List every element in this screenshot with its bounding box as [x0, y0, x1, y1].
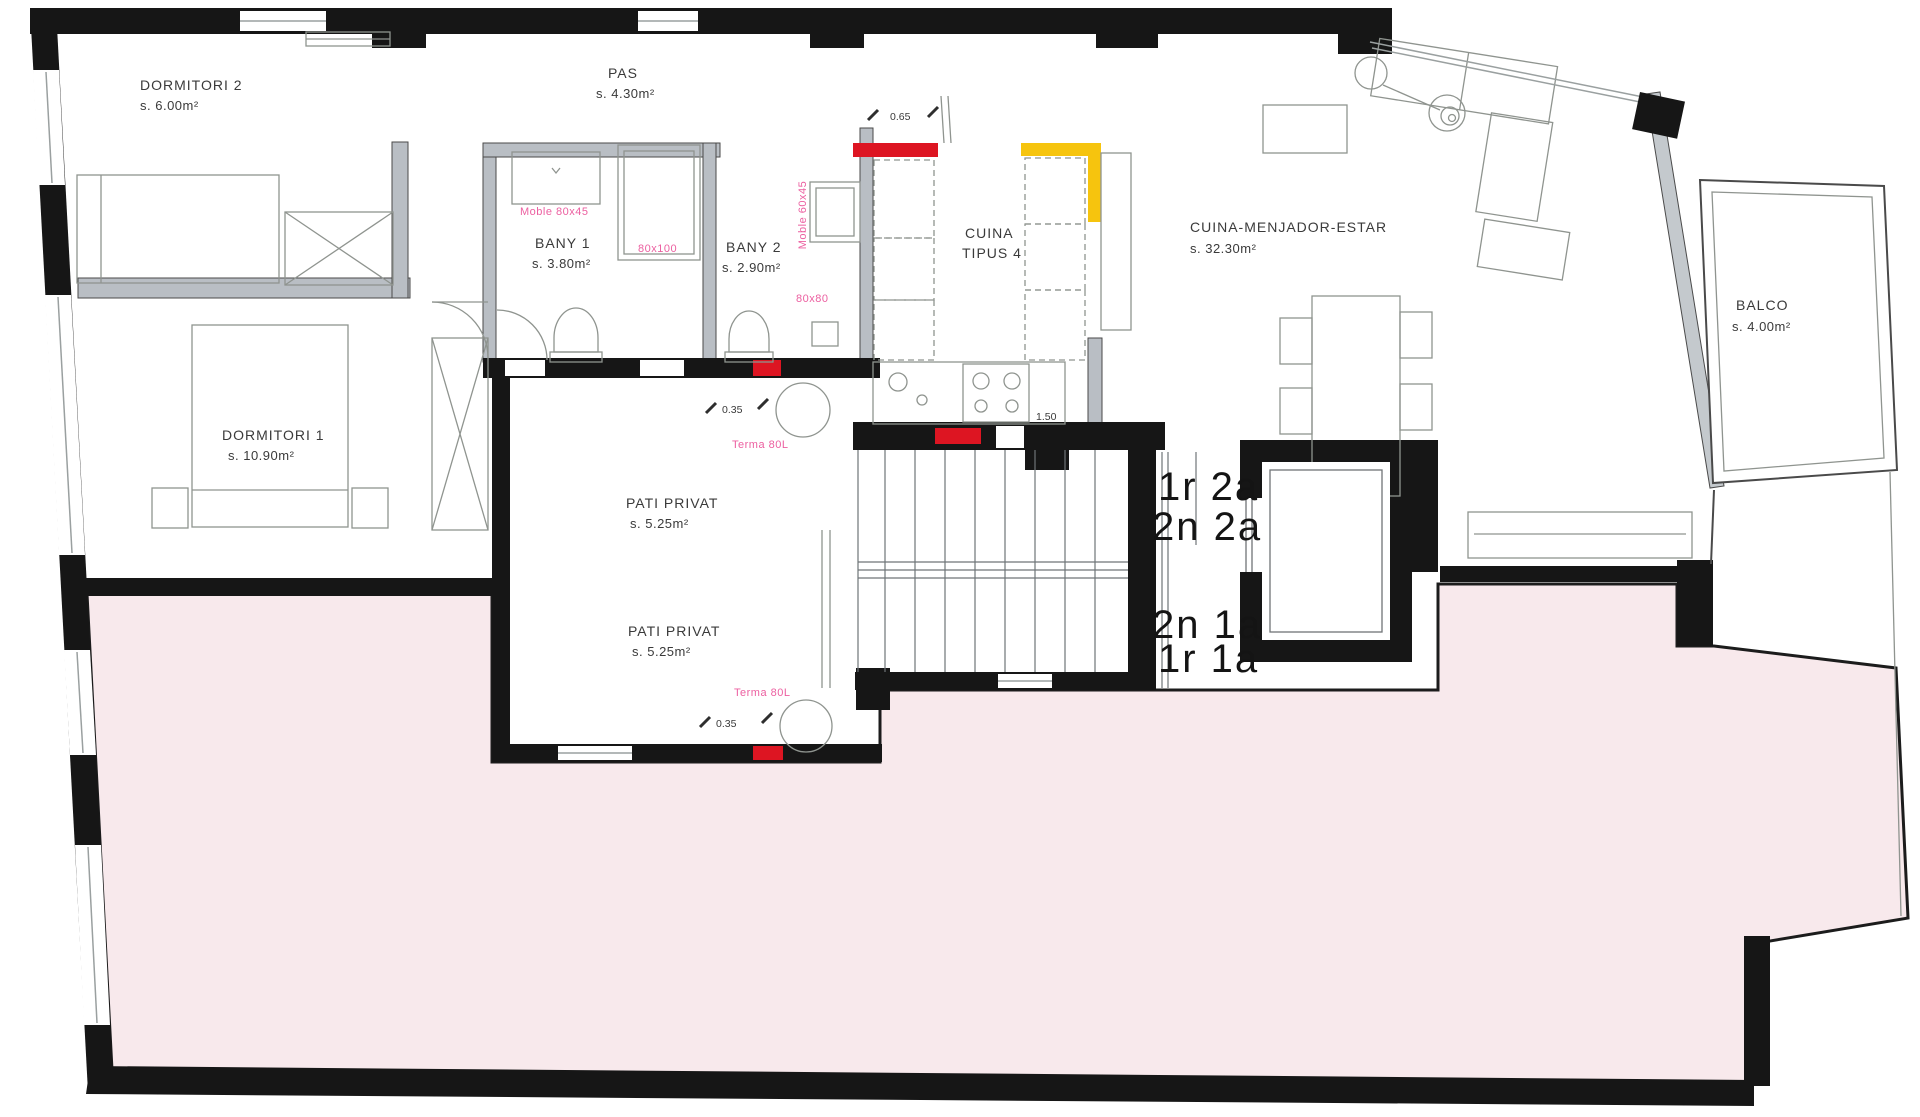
wardrobe-dormitori1	[432, 338, 488, 530]
balcony-outline	[1700, 180, 1897, 483]
stair-right-wall	[1128, 422, 1156, 690]
pati-stair-corner	[856, 668, 890, 710]
dim-pati-2: 0.35	[716, 718, 737, 730]
bed-dormitori2	[77, 175, 279, 283]
label-pati2-name: PATI PRIVAT	[628, 623, 720, 639]
dim-pati-1: 0.35	[722, 404, 743, 416]
elevator-cab	[1262, 462, 1390, 640]
red-wall-segment	[753, 746, 783, 760]
label-bany1-name: BANY 1	[535, 235, 591, 251]
sink-bany1	[512, 152, 600, 204]
door-arc-dormitori1	[432, 302, 488, 358]
top-wall-pillar	[1096, 8, 1158, 48]
dim-kitchen-run: 1.50	[1036, 411, 1057, 423]
label-bany2-area: s. 2.90m²	[722, 260, 781, 275]
water-heater-1	[776, 383, 830, 437]
label-terma-2: Terma 80L	[734, 687, 790, 699]
bottom-right-step-wall	[1744, 936, 1770, 1086]
floor-plan-drawing: DORMITORI 2 s. 6.00m² PAS s. 4.30m² BANY…	[0, 0, 1920, 1117]
top-wall-pillar	[372, 8, 426, 48]
armchair-spiral	[1429, 95, 1465, 131]
red-wall-segment	[935, 428, 981, 444]
shower-tray-bany2	[812, 322, 838, 346]
label-balco-area: s. 4.00m²	[1732, 319, 1791, 334]
label-dormitori1-area: s. 10.90m²	[228, 448, 295, 463]
bench-wall	[1440, 566, 1712, 582]
label-pati1-name: PATI PRIVAT	[626, 495, 718, 511]
pati-left-wall	[492, 365, 510, 762]
bany1-left-wall	[483, 157, 496, 362]
label-moble-60x45: Moble 60x45	[797, 181, 809, 250]
stair-landing-lines	[858, 562, 1128, 578]
kitchen-door-lines	[941, 96, 951, 143]
toilet-bany2	[725, 311, 773, 362]
terrace-area	[87, 584, 1908, 1082]
dorm2-bottom-wall	[78, 278, 410, 298]
sofa-group	[1347, 38, 1595, 280]
label-dormitori2-name: DORMITORI 2	[140, 77, 243, 93]
label-balco-name: BALCO	[1736, 297, 1788, 313]
wardrobe-dormitori2	[285, 212, 393, 285]
unit-label-1r1a: 1r 1a	[1158, 637, 1259, 681]
label-cuina-name: CUINA	[965, 225, 1014, 241]
label-pati2-area: s. 5.25m²	[632, 644, 691, 659]
stair-top-pillar	[1025, 422, 1069, 470]
dimension-ticks	[700, 107, 938, 727]
sink-bany2	[810, 182, 860, 242]
facade-corner-chunk	[1677, 560, 1713, 646]
interior-partitions	[78, 128, 1102, 426]
label-dormitori2-area: s. 6.00m²	[140, 98, 199, 113]
dim-door-top: 0.65	[890, 111, 911, 123]
label-pas-area: s. 4.30m²	[596, 86, 655, 101]
label-living-name: CUINA-MENJADOR-ESTAR	[1190, 219, 1387, 235]
kitchen-counter-strip	[1101, 153, 1131, 330]
pati-divider	[822, 530, 830, 688]
label-shower-80x100: 80x100	[638, 243, 677, 255]
staircase	[858, 450, 1128, 672]
elevator	[1240, 462, 1390, 640]
floor-plan: DORMITORI 2 s. 6.00m² PAS s. 4.30m² BANY…	[0, 0, 1920, 1117]
facade-lower-line	[1711, 490, 1714, 564]
unit-label-1r2a: 1r 2a	[1158, 465, 1259, 509]
kitchen-wall-stub	[1088, 338, 1102, 426]
label-terma-1: Terma 80L	[732, 439, 788, 451]
door-arc-bany1	[497, 310, 547, 360]
facade-black-chunk	[1632, 92, 1685, 139]
dorm2-right-wall	[392, 142, 408, 298]
label-living-area: s. 32.30m²	[1190, 241, 1257, 256]
bany-divider-wall	[703, 143, 716, 362]
label-dormitori1-name: DORMITORI 1	[222, 427, 325, 443]
bany2-kitchen-wall	[860, 128, 873, 368]
label-cuina-type: TIPUS 4	[962, 245, 1022, 261]
top-wall-pillar	[810, 8, 864, 48]
red-wall-segment	[853, 143, 938, 157]
floor-lamp	[1355, 57, 1440, 110]
stair-bottom-wall	[855, 672, 1128, 690]
coffee-table	[1263, 105, 1347, 153]
yellow-counter-accent	[1021, 143, 1101, 222]
balcony	[1700, 180, 1897, 483]
label-pas-name: PAS	[608, 65, 638, 81]
label-bany1-area: s. 3.80m²	[532, 256, 591, 271]
pati-bottom-wall	[492, 744, 882, 762]
kitchen-hob	[963, 364, 1029, 422]
label-bany2-name: BANY 2	[726, 239, 782, 255]
top-wall-pillar	[1338, 8, 1392, 54]
label-pati1-area: s. 5.25m²	[630, 516, 689, 531]
label-moble-80x45: Moble 80x45	[520, 206, 589, 218]
label-shower-80x80: 80x80	[796, 293, 828, 305]
top-wall	[30, 8, 1392, 34]
bench	[1468, 512, 1692, 558]
toilet-bany1	[550, 308, 602, 362]
glass-front-line	[1370, 42, 1650, 104]
elevator-side-wall	[1412, 440, 1438, 572]
dorm1-terrace-wall	[68, 578, 509, 596]
kitchen-sink	[889, 373, 927, 405]
unit-label-2n2a: 2n 2a	[1152, 505, 1262, 549]
